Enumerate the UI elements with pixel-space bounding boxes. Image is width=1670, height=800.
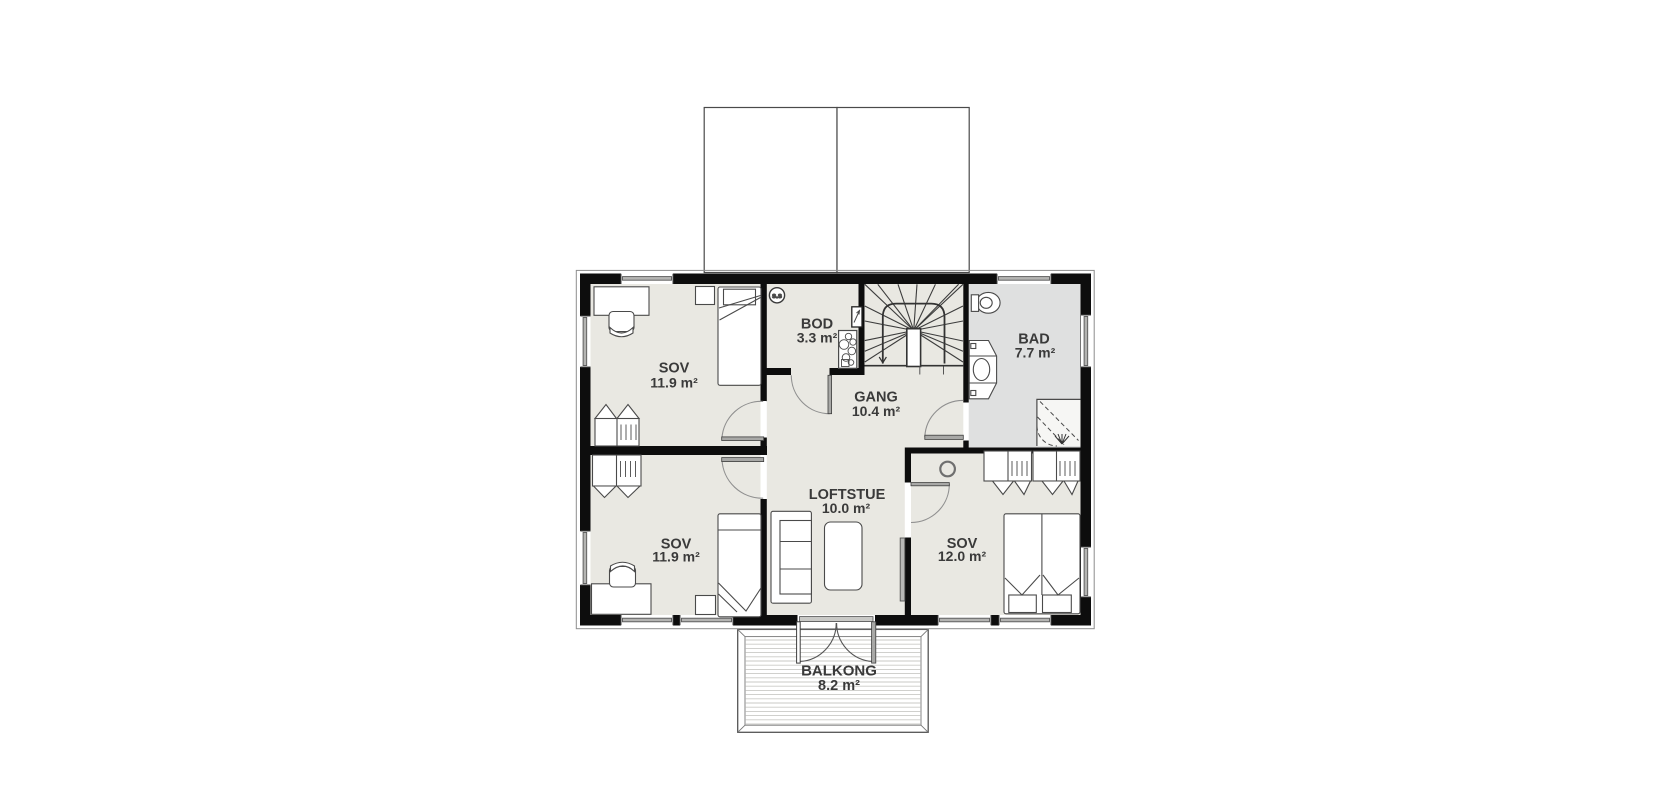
svg-text:12.0 m²: 12.0 m² <box>938 548 987 564</box>
svg-text:s.s: s.s <box>772 293 782 300</box>
svg-text:8.2 m²: 8.2 m² <box>818 678 860 694</box>
svg-text:3.3 m²: 3.3 m² <box>797 330 838 346</box>
svg-text:11.9 m²: 11.9 m² <box>650 375 698 391</box>
svg-text:7.7 m²: 7.7 m² <box>1015 345 1056 361</box>
svg-text:BALKONG: BALKONG <box>801 663 877 680</box>
svg-text:10.4 m²: 10.4 m² <box>852 403 901 419</box>
svg-text:11.9 m²: 11.9 m² <box>652 549 700 565</box>
svg-text:10.0 m²: 10.0 m² <box>822 500 871 516</box>
